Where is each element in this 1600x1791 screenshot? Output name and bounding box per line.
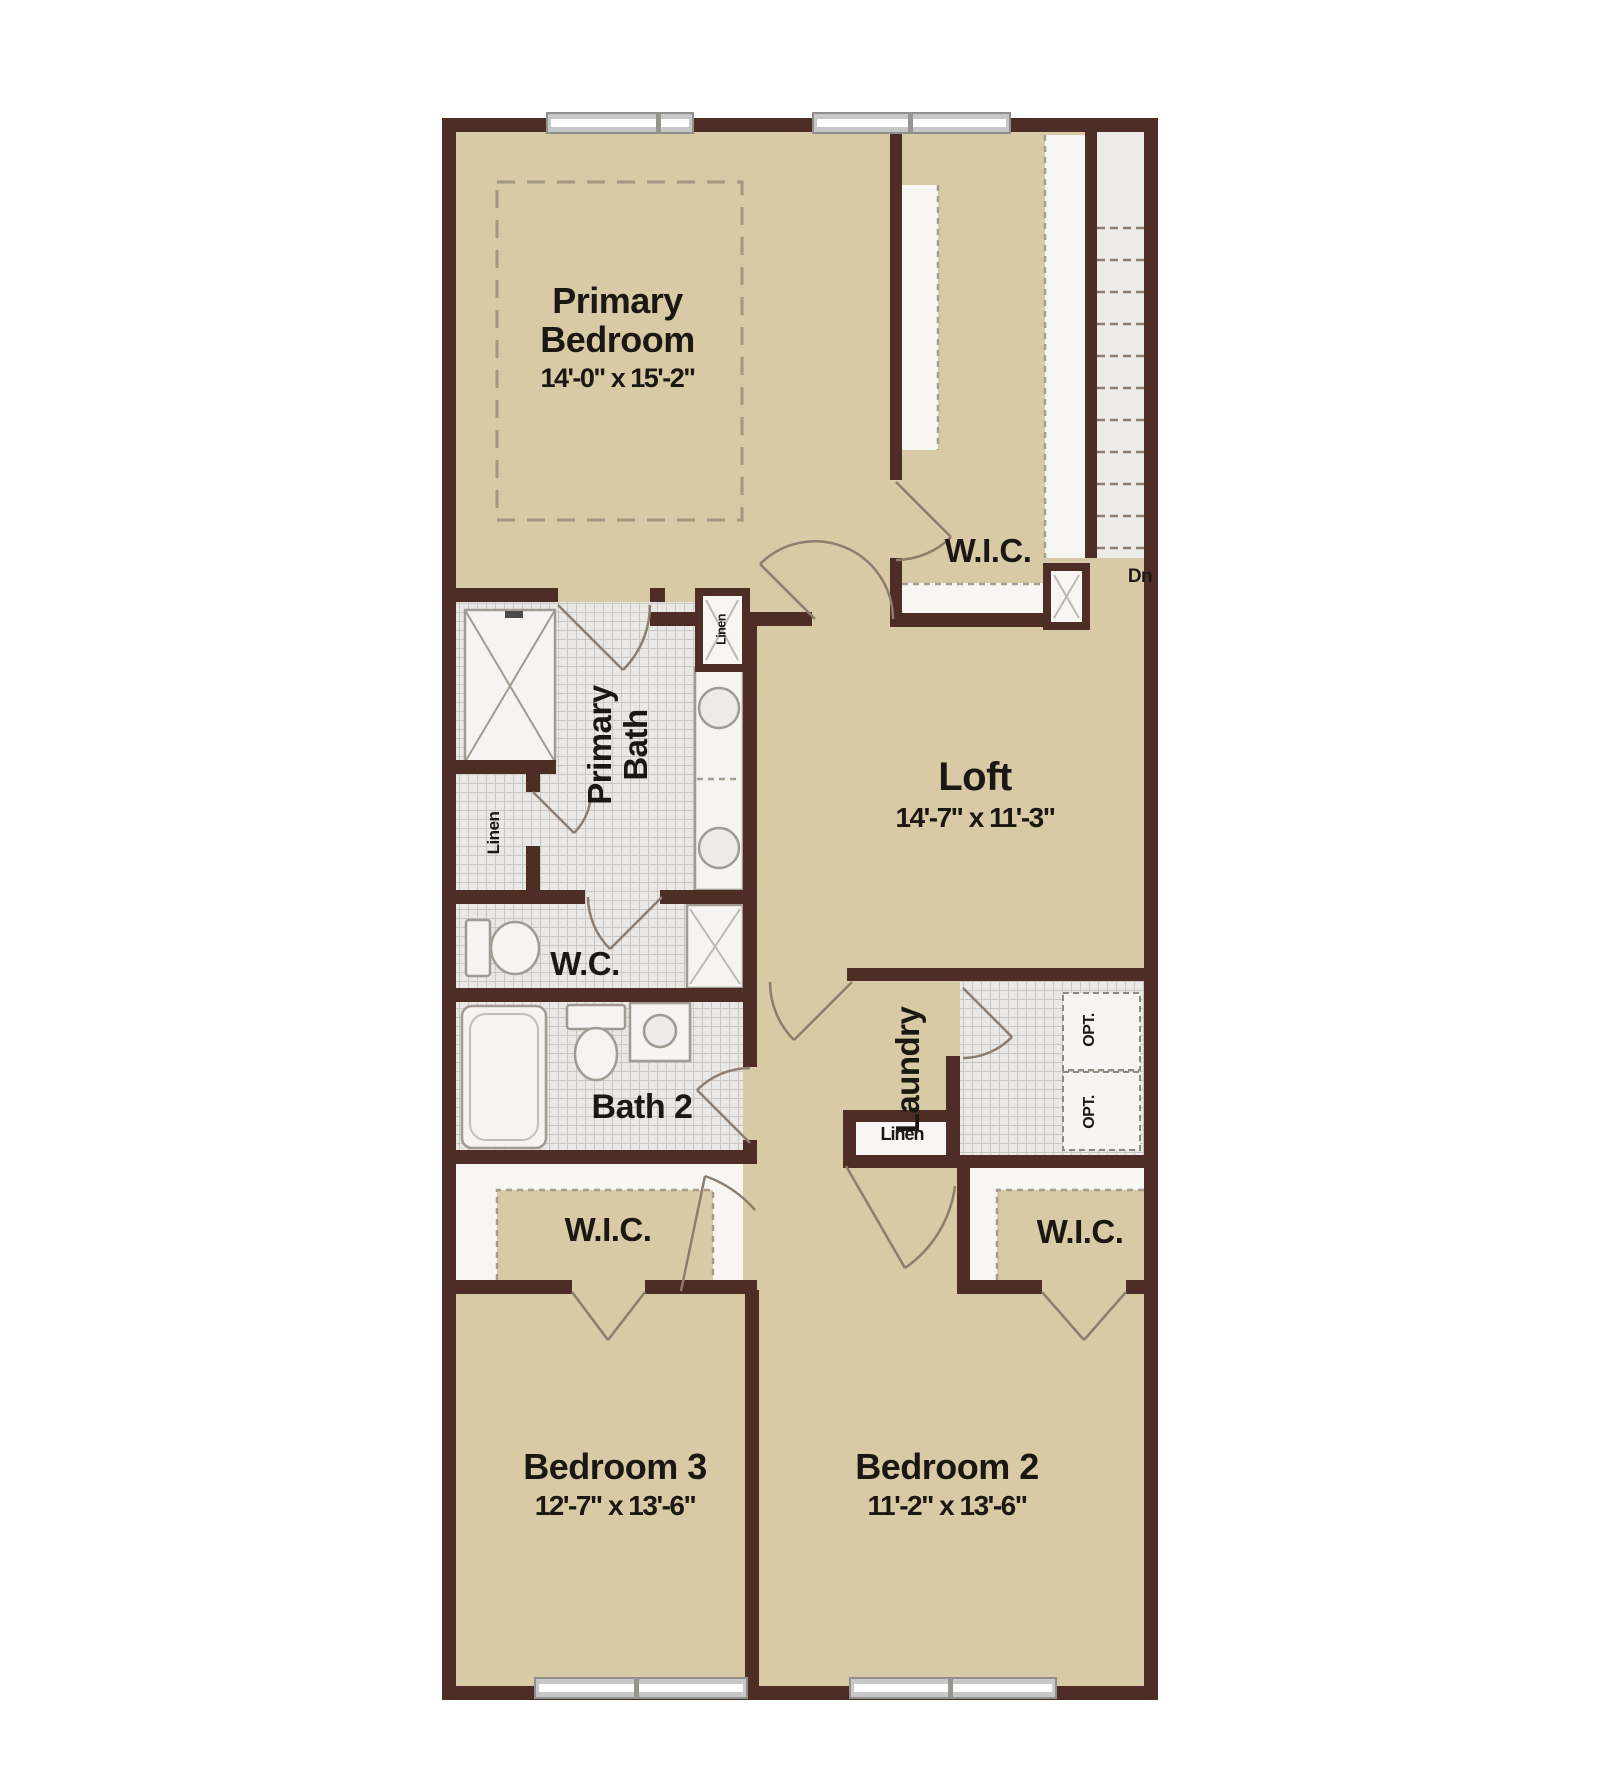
room-name: W.I.C. — [995, 1214, 1165, 1250]
washer-optional — [1063, 993, 1140, 1070]
room-name: Loft — [855, 756, 1095, 799]
label-primary-bath: Primary Bath — [582, 610, 672, 880]
floor-plan-drawing — [0, 0, 1600, 1791]
label-wic-bedroom2: W.I.C. — [995, 1214, 1165, 1250]
label-dryer-opt: OPT. — [1079, 1084, 1101, 1140]
room-name: Laundry — [890, 960, 926, 1180]
room-name: Bath 2 — [552, 1089, 732, 1126]
wall-wic-west — [890, 125, 902, 480]
shower-head — [505, 611, 523, 618]
room-name: Primary Bath — [582, 670, 653, 820]
label-bedroom2: Bedroom 2 11'-2" x 13'-6" — [807, 1448, 1087, 1522]
window — [813, 113, 1010, 133]
wall-wic2-bottom-right — [1126, 1280, 1158, 1294]
wall-outer-right — [1144, 118, 1158, 1700]
toilet-tank — [466, 920, 490, 976]
label-linen-bath: Linen — [484, 787, 504, 879]
shelf-wic-bottom — [902, 583, 1043, 613]
label-loft: Loft 14'-7" x 11'-3" — [855, 756, 1095, 834]
window — [547, 113, 693, 133]
shelf-wic-right — [1045, 135, 1085, 558]
wall-shower-bottom — [456, 760, 556, 774]
room-name: W.I.C. — [903, 533, 1073, 569]
sink — [699, 688, 739, 728]
room-name: Primary Bedroom — [500, 282, 735, 360]
wall-outer-left — [442, 118, 456, 1700]
sink — [699, 828, 739, 868]
bathtub — [462, 1006, 546, 1148]
label-primary-bedroom: Primary Bedroom 14'-0" x 15'-2" — [500, 282, 735, 394]
wall-bath2-top — [442, 988, 757, 1002]
wall-linen-jamb — [526, 846, 540, 890]
wall-wic3-bottom-right — [645, 1280, 757, 1294]
room-dims: 14'-0" x 15'-2" — [500, 363, 735, 394]
window — [535, 1678, 747, 1698]
label-laundry: Laundry — [890, 960, 934, 1180]
room-dims: 11'-2" x 13'-6" — [807, 1490, 1087, 1522]
label-primary-wic: W.I.C. — [903, 533, 1073, 569]
floor-plan: Primary Bedroom 14'-0" x 15'-2" W.I.C. D… — [0, 0, 1600, 1791]
label-bedroom3: Bedroom 3 12'-7" x 13'-6" — [475, 1448, 755, 1522]
toilet-tank — [567, 1005, 625, 1029]
label-washer-opt: OPT. — [1079, 1002, 1101, 1058]
room-dims: 12'-7" x 13'-6" — [475, 1490, 755, 1522]
label-wic-bedroom3: W.I.C. — [523, 1212, 693, 1248]
dryer-optional — [1063, 1072, 1140, 1150]
wall-wc-top — [442, 890, 585, 904]
wall-bath-top-left — [442, 588, 558, 602]
label-wc: W.C. — [500, 946, 670, 982]
wall-bath-top-right — [650, 588, 665, 602]
room-dims: 14'-7" x 11'-3" — [855, 802, 1095, 834]
wall-wc-top-stub — [660, 890, 757, 904]
wall-linen-jamb — [526, 774, 540, 792]
wall-laundry-bottom — [946, 1155, 1158, 1168]
wall-wic2-bottom-left — [957, 1280, 1042, 1294]
room-name: Bedroom 3 — [475, 1448, 755, 1487]
label-bath2: Bath 2 — [552, 1089, 732, 1126]
toilet-bowl — [575, 1028, 617, 1080]
label-linen-hall: Linen — [856, 1124, 948, 1145]
room-name: Bedroom 2 — [807, 1448, 1087, 1487]
label-linen-cabinet: Linen — [715, 601, 730, 659]
floor-stairs — [1097, 132, 1144, 558]
wall-wic3-bottom-left — [442, 1280, 572, 1294]
sink — [644, 1015, 676, 1047]
shelf-wic-left — [902, 185, 938, 450]
wall-bath2-bottom — [442, 1150, 757, 1164]
room-name: W.I.C. — [523, 1212, 693, 1248]
wall-wic2-west — [957, 1168, 970, 1294]
wall-stair-west — [1085, 132, 1097, 558]
label-stairs-down: Dn — [1116, 566, 1164, 588]
room-name: W.C. — [500, 946, 670, 982]
window — [850, 1678, 1056, 1698]
